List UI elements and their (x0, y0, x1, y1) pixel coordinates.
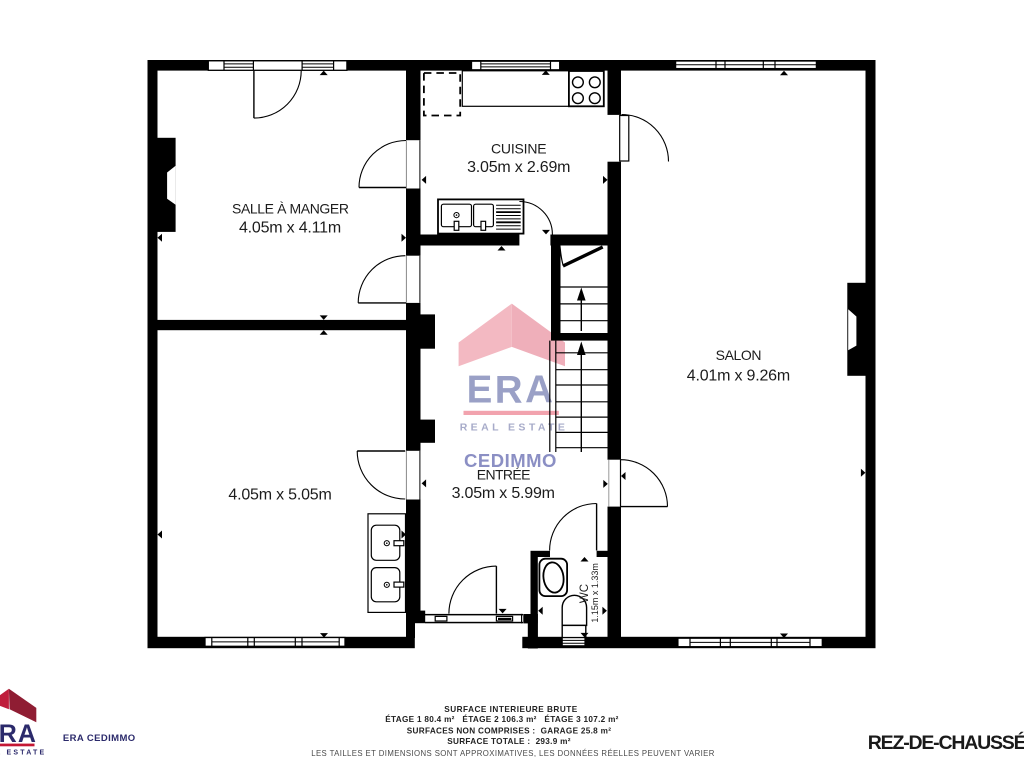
svg-text:SURFACES NON COMPRISES : GARA: SURFACES NON COMPRISES : GARAGE 25.8 m² (407, 727, 611, 736)
svg-text:SALLE À MANGER: SALLE À MANGER (232, 200, 349, 216)
svg-text:CUISINE: CUISINE (491, 141, 546, 157)
svg-text:1.15m x 1.33m: 1.15m x 1.33m (590, 563, 600, 623)
svg-text:3.05m x 5.99m: 3.05m x 5.99m (452, 485, 555, 502)
svg-text:LES TAILLES ET DIMENSIONS SONT: LES TAILLES ET DIMENSIONS SONT APPROXIMA… (311, 749, 715, 758)
svg-text:REAL ESTATE: REAL ESTATE (460, 422, 569, 434)
svg-text:ERA: ERA (467, 368, 556, 411)
svg-text:ENTRÉE: ENTRÉE (477, 466, 530, 482)
svg-text:ÉTAGE 1 80.4 m² ÉTAGE 2 106.: ÉTAGE 1 80.4 m² ÉTAGE 2 106.3 m² ÉTAGE 3… (385, 714, 618, 724)
svg-text:3.05m x 2.69m: 3.05m x 2.69m (467, 159, 570, 176)
svg-text:4.05m x 4.11m: 4.05m x 4.11m (239, 219, 341, 236)
svg-text:SALON: SALON (716, 347, 761, 363)
svg-text:REAL ESTATE: REAL ESTATE (0, 750, 46, 757)
svg-text:REZ-DE-CHAUSSÉE: REZ-DE-CHAUSSÉE (868, 731, 1024, 754)
svg-text:SURFACE INTERIEURE BRUTE: SURFACE INTERIEURE BRUTE (444, 705, 577, 714)
svg-text:4.05m x 5.05m: 4.05m x 5.05m (228, 486, 331, 503)
svg-text:WC: WC (579, 584, 591, 603)
svg-text:SURFACE TOTALE : 293.9 m²: SURFACE TOTALE : 293.9 m² (447, 737, 571, 746)
svg-text:4.01m x 9.26m: 4.01m x 9.26m (687, 368, 790, 385)
svg-text:ERA CEDIMMO: ERA CEDIMMO (63, 733, 136, 744)
